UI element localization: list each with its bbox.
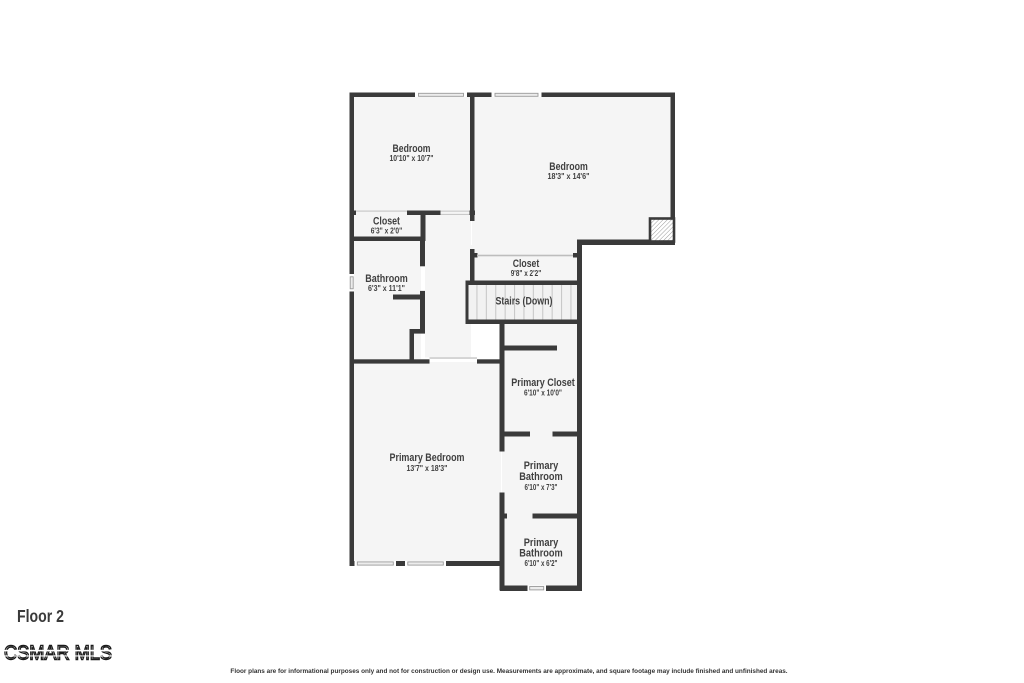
svg-text:Primary Closet: Primary Closet <box>511 377 575 389</box>
svg-text:Bathroom: Bathroom <box>519 471 563 483</box>
svg-text:Floor plans are for informatio: Floor plans are for informational purpos… <box>230 668 787 675</box>
svg-text:6'10" x 6'2": 6'10" x 6'2" <box>525 559 558 568</box>
svg-text:Primary Bedroom: Primary Bedroom <box>390 452 465 464</box>
svg-text:6'10" x 7'3": 6'10" x 7'3" <box>525 483 558 492</box>
svg-text:CSMAR MLS: CSMAR MLS <box>4 643 112 665</box>
svg-text:Bathroom: Bathroom <box>519 547 563 559</box>
svg-text:9'8" x 2'2": 9'8" x 2'2" <box>511 269 542 278</box>
svg-text:6'3" x 11'1": 6'3" x 11'1" <box>368 284 405 293</box>
svg-text:13'7" x 18'3": 13'7" x 18'3" <box>407 464 448 473</box>
svg-text:18'3" x 14'6": 18'3" x 14'6" <box>548 172 590 181</box>
svg-text:10'10" x 10'7": 10'10" x 10'7" <box>390 154 434 163</box>
svg-text:Floor 2: Floor 2 <box>17 606 64 626</box>
svg-text:6'3" x 2'0": 6'3" x 2'0" <box>371 226 403 235</box>
svg-text:6'10" x 10'0": 6'10" x 10'0" <box>524 389 562 398</box>
svg-text:Stairs (Down): Stairs (Down) <box>496 296 553 308</box>
svg-text:Bedroom: Bedroom <box>549 161 588 173</box>
